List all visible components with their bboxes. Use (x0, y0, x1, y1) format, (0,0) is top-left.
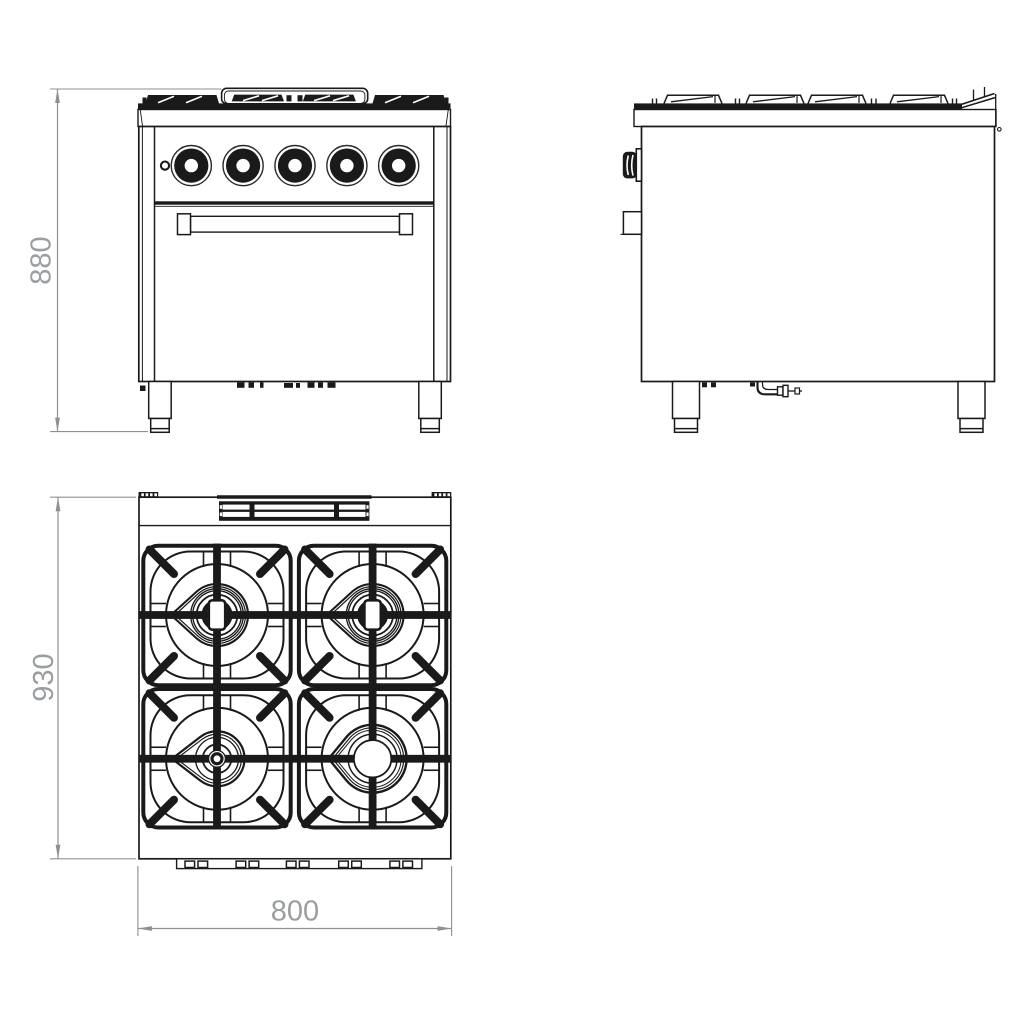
svg-text:930: 930 (28, 653, 60, 701)
svg-text:880: 880 (26, 236, 58, 284)
svg-text:800: 800 (271, 896, 319, 928)
